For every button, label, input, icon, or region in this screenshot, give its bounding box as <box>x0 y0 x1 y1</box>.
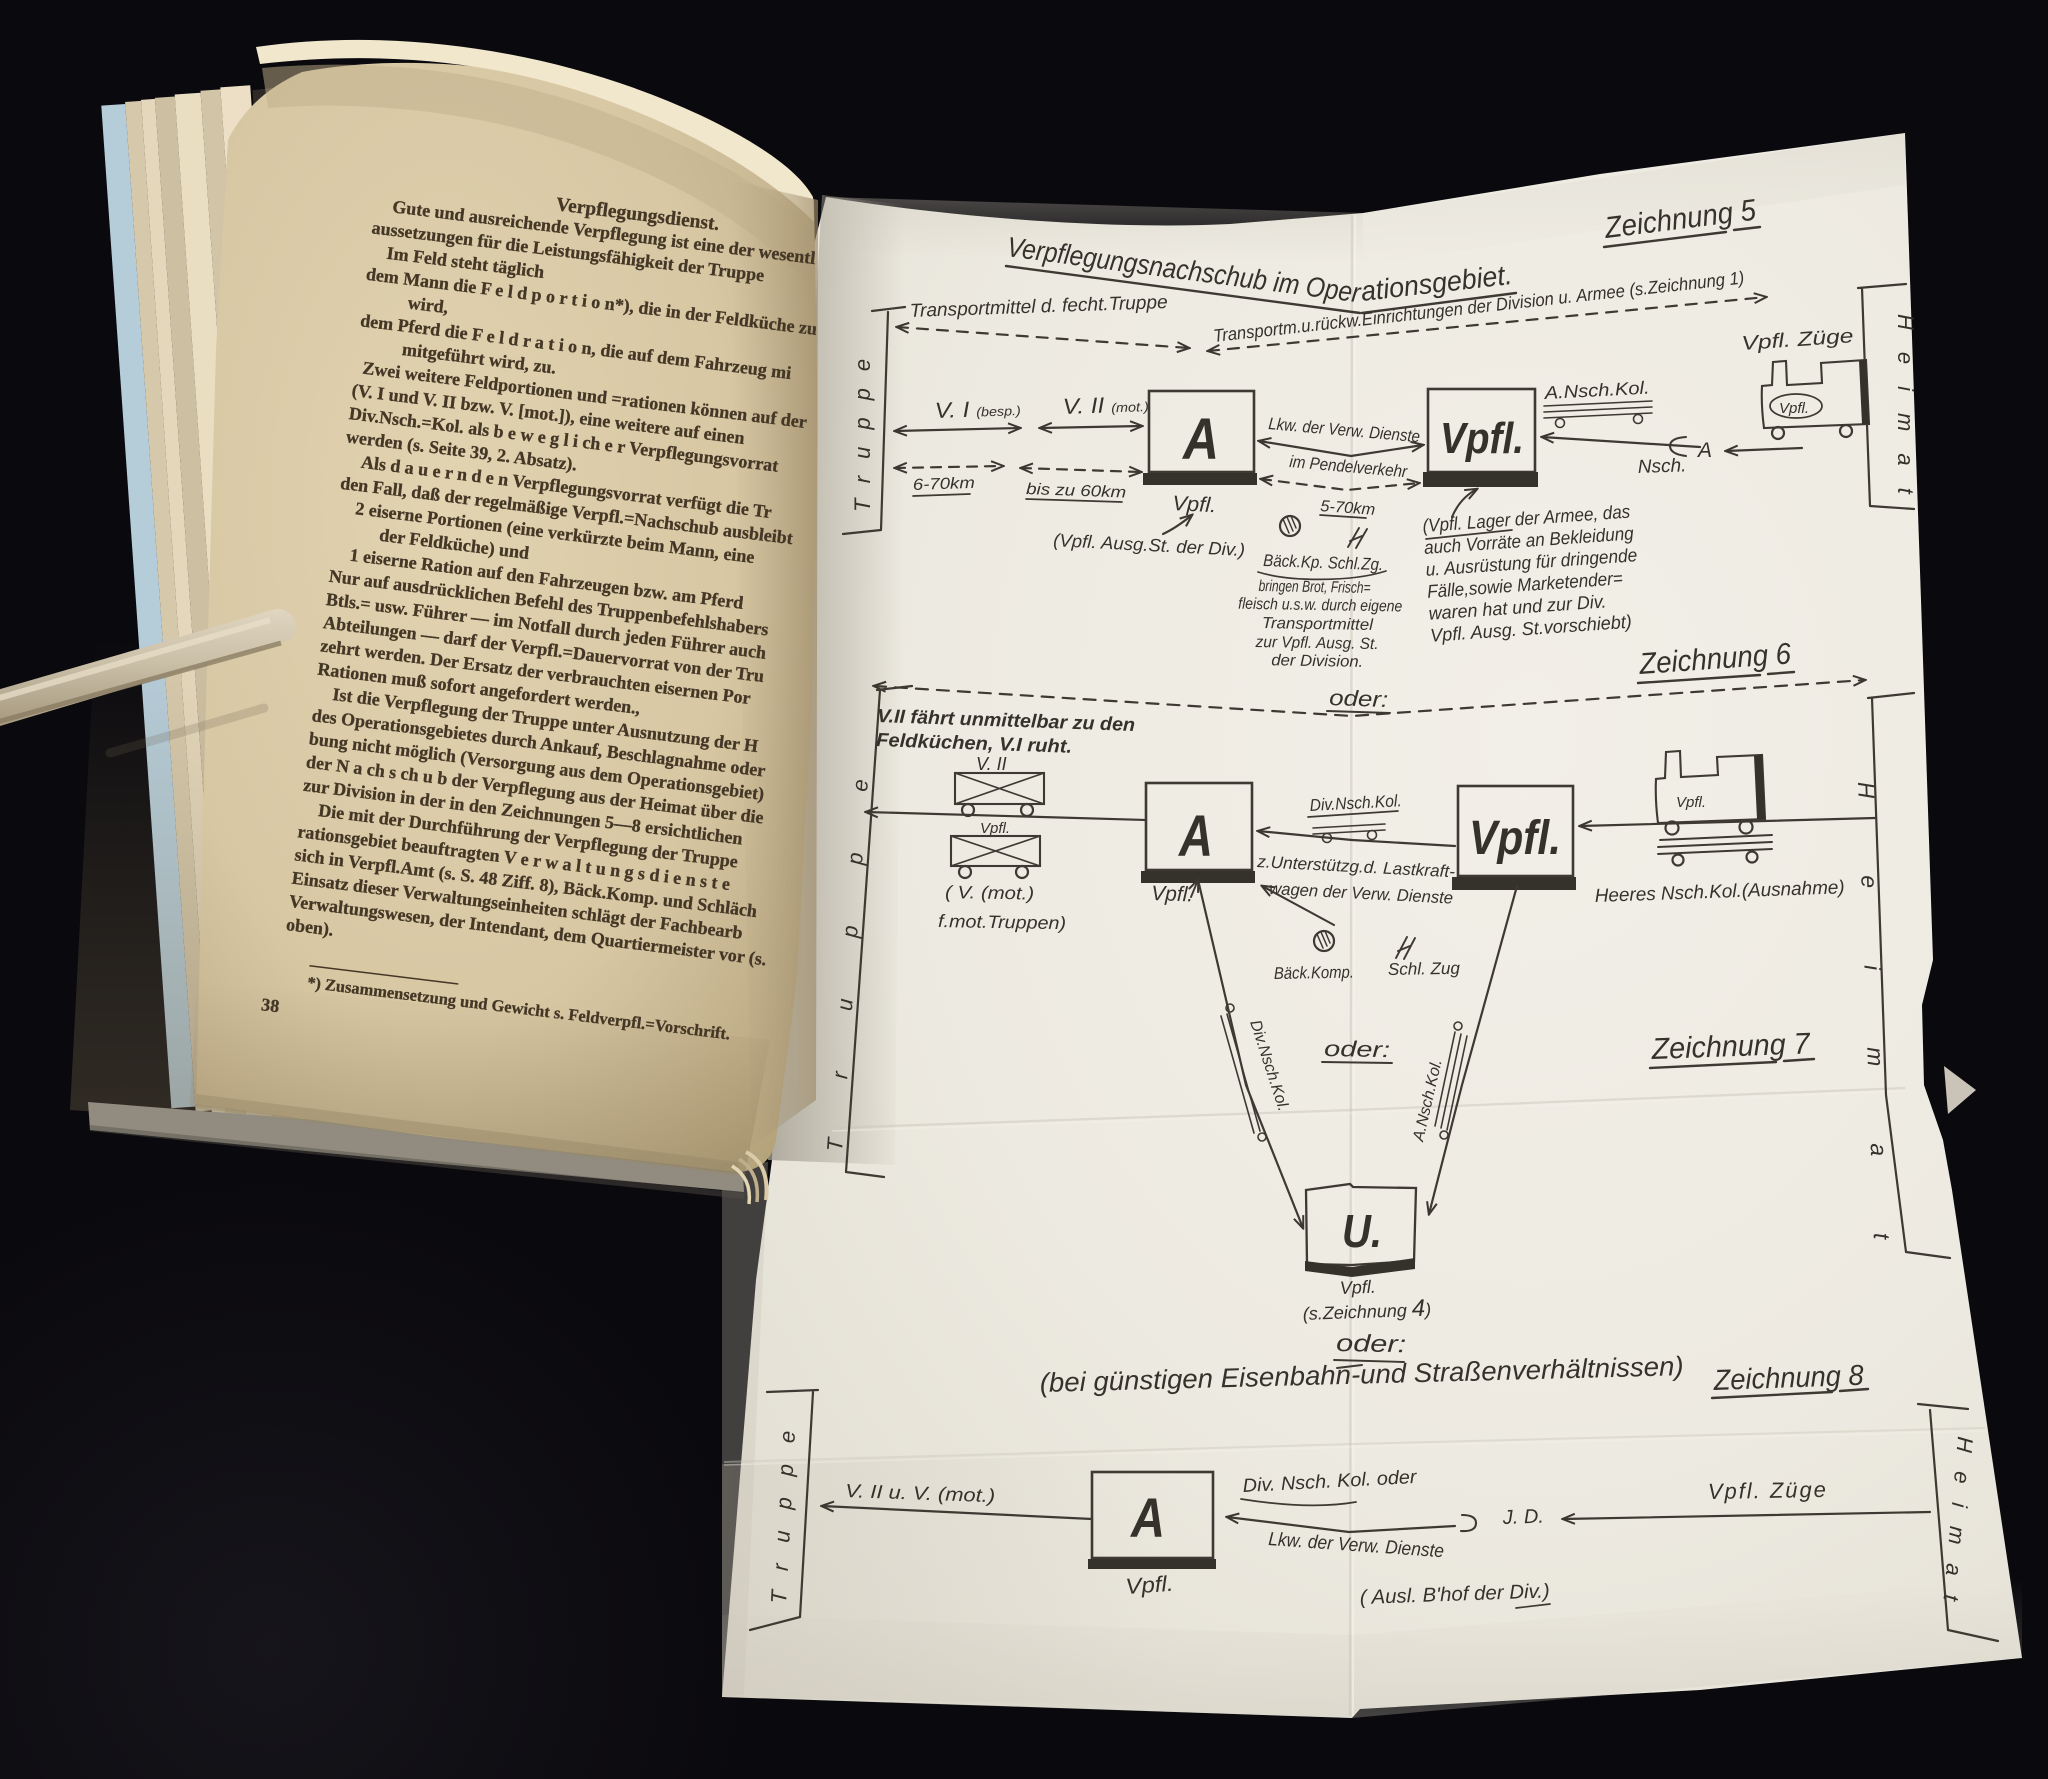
svg-text:V. II: V. II <box>976 754 1007 774</box>
svg-text:6-70km: 6-70km <box>913 475 976 494</box>
svg-text:Nsch.: Nsch. <box>1637 455 1686 478</box>
svg-text:J. D.: J. D. <box>1501 1506 1544 1529</box>
svg-text:Vpfl.: Vpfl. <box>1172 492 1217 517</box>
svg-text:Vpfl.: Vpfl. <box>1779 400 1809 417</box>
svg-text:Vpfl.: Vpfl. <box>980 820 1010 837</box>
svg-text:bringen Brot, Frisch=: bringen Brot, Frisch= <box>1258 578 1370 597</box>
svg-text:A: A <box>1129 1486 1165 1549</box>
svg-text:zur Vpfl. Ausg. St.: zur Vpfl. Ausg. St. <box>1254 634 1378 653</box>
svg-text:oder:: oder: <box>1329 685 1389 712</box>
svg-text:Vpfl.: Vpfl. <box>1125 1571 1175 1599</box>
svg-text:Vpfl.: Vpfl. <box>1469 812 1561 865</box>
svg-text:oder:: oder: <box>1324 1036 1390 1062</box>
svg-text:( V. (mot.): ( V. (mot.) <box>945 882 1034 904</box>
svg-text:Vpfl. Züge: Vpfl. Züge <box>1708 1477 1828 1504</box>
svg-text:Vpfl.: Vpfl. <box>1339 1277 1376 1298</box>
svg-text:Vpfl.: Vpfl. <box>1440 414 1524 463</box>
svg-text:Vpfl.: Vpfl. <box>1151 882 1194 906</box>
svg-text:fleisch u.s.w. durch eigene: fleisch u.s.w. durch eigene <box>1238 596 1402 616</box>
svg-text:A: A <box>1177 804 1213 869</box>
svg-text:A: A <box>1181 407 1219 472</box>
svg-text:A: A <box>1696 439 1712 462</box>
svg-text:Schl. Zug: Schl. Zug <box>1388 959 1461 979</box>
svg-text:38: 38 <box>260 994 280 1016</box>
svg-text:Transportmittel: Transportmittel <box>1262 615 1374 634</box>
svg-text:Heimat: Heimat <box>1893 314 1918 516</box>
svg-text:Vpfl.: Vpfl. <box>1676 794 1706 811</box>
svg-text:f.mot.Truppen): f.mot.Truppen) <box>938 911 1066 933</box>
svg-text:der Division.: der Division. <box>1271 652 1363 671</box>
svg-text:U.: U. <box>1342 1205 1382 1257</box>
svg-text:oder:: oder: <box>1336 1330 1406 1358</box>
svg-text:Truppe: Truppe <box>850 342 875 512</box>
svg-text:bis zu 60km: bis zu 60km <box>1026 481 1127 501</box>
svg-text:Bäck.Komp.: Bäck.Komp. <box>1274 963 1354 983</box>
